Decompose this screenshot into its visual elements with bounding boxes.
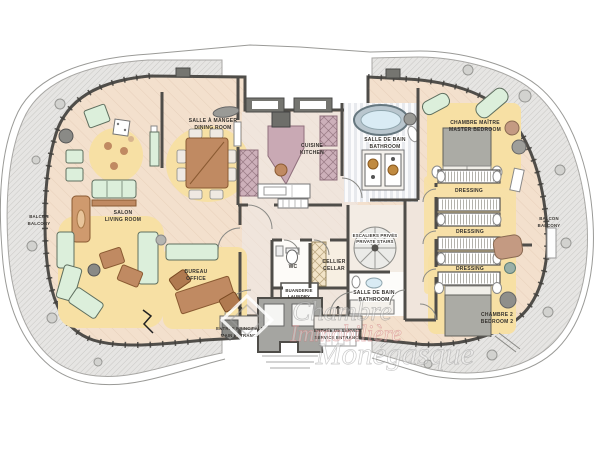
- sofa: [92, 180, 136, 198]
- console: [92, 200, 136, 206]
- label-balcony-left-fr: BALCON: [29, 214, 49, 219]
- label-bedroom-2-fr: CHAMBRE 2: [481, 312, 513, 318]
- label-balcony-left-en: BALCONY: [28, 221, 51, 226]
- label-bedroom-2-en: BEDROOM 2: [481, 319, 514, 325]
- wardrobe-row: [437, 252, 501, 265]
- label-balcony-right-en: BALCONY: [538, 223, 561, 228]
- wardrobe-row: [437, 213, 501, 226]
- master-bathroom: [344, 103, 420, 202]
- label-dressing-1: DRESSING: [455, 188, 483, 194]
- office-sofa: [166, 244, 218, 260]
- label-kitchen-en: KITCHEN: [300, 150, 324, 156]
- makeup-table: [492, 234, 523, 261]
- label-living-en: LIVING ROOM: [105, 217, 141, 223]
- planter: [156, 235, 166, 245]
- nightstand-3: [435, 283, 444, 294]
- label-dining-en: DINING ROOM: [194, 125, 231, 131]
- pouf: [505, 121, 519, 135]
- nightstand-4: [493, 283, 502, 294]
- cooktop: [272, 112, 290, 127]
- balcony-bench: [547, 228, 556, 258]
- wardrobe-row: [438, 272, 500, 285]
- bathroom-stool: [404, 113, 416, 125]
- kitchen-counter: [258, 184, 310, 198]
- label-laundry-fr: BUANDERIE: [285, 288, 312, 293]
- label-master-bathroom-en: BATHROOM: [369, 144, 400, 150]
- floor-plan: SALLE À MANGER DINING ROOM CUISINE KITCH…: [0, 0, 600, 450]
- round-table: [59, 129, 73, 143]
- label-kitchen-fr: CUISINE: [301, 143, 323, 149]
- master-bed: [443, 128, 491, 168]
- hall-radiator: [278, 199, 308, 208]
- toilet: [287, 250, 298, 264]
- label-master-bathroom-fr: SALLE DE BAIN: [364, 137, 406, 143]
- label-master-bedroom-en: MASTER BEDROOM: [449, 127, 501, 133]
- watermark-line-3: Monégasque: [315, 336, 475, 371]
- wardrobe-row: [437, 170, 501, 183]
- armchair-2: [500, 292, 516, 308]
- label-dining-fr: SALLE À MANGER: [189, 117, 238, 124]
- label-wc: WC: [289, 264, 298, 270]
- label-stairs-fr: ESCALIERS PRIVÉS: [353, 233, 398, 238]
- label-office-fr: BUREAU: [185, 269, 208, 275]
- label-cellar-en: CELLAR: [323, 266, 345, 272]
- label-office-en: OFFICE: [186, 276, 206, 282]
- wardrobe-row: [438, 237, 500, 250]
- label-dressing-2: DRESSING: [456, 229, 484, 235]
- label-stairs-en: PRIVATE STAIRS: [356, 239, 393, 244]
- label-balcony-right-fr: BALCON: [539, 216, 559, 221]
- makeup-stool: [505, 263, 516, 274]
- living-room-rug: [89, 128, 143, 182]
- side-table: [113, 119, 130, 136]
- label-cellar-fr: CELLIER: [322, 259, 345, 265]
- sink-2: [366, 278, 382, 288]
- wardrobe-row: [438, 198, 500, 211]
- label-master-bedroom-fr: CHAMBRE MAÎTRE: [450, 118, 500, 126]
- kitchen-stool: [275, 164, 287, 176]
- pocket-door-2: [234, 122, 241, 146]
- label-living-fr: SALON: [114, 210, 133, 216]
- wc-sink: [276, 246, 283, 256]
- bed-2-pillows: [445, 286, 491, 295]
- dining-bench: [150, 132, 159, 166]
- pouf-2: [512, 140, 526, 154]
- label-dressing-3: DRESSING: [456, 266, 484, 272]
